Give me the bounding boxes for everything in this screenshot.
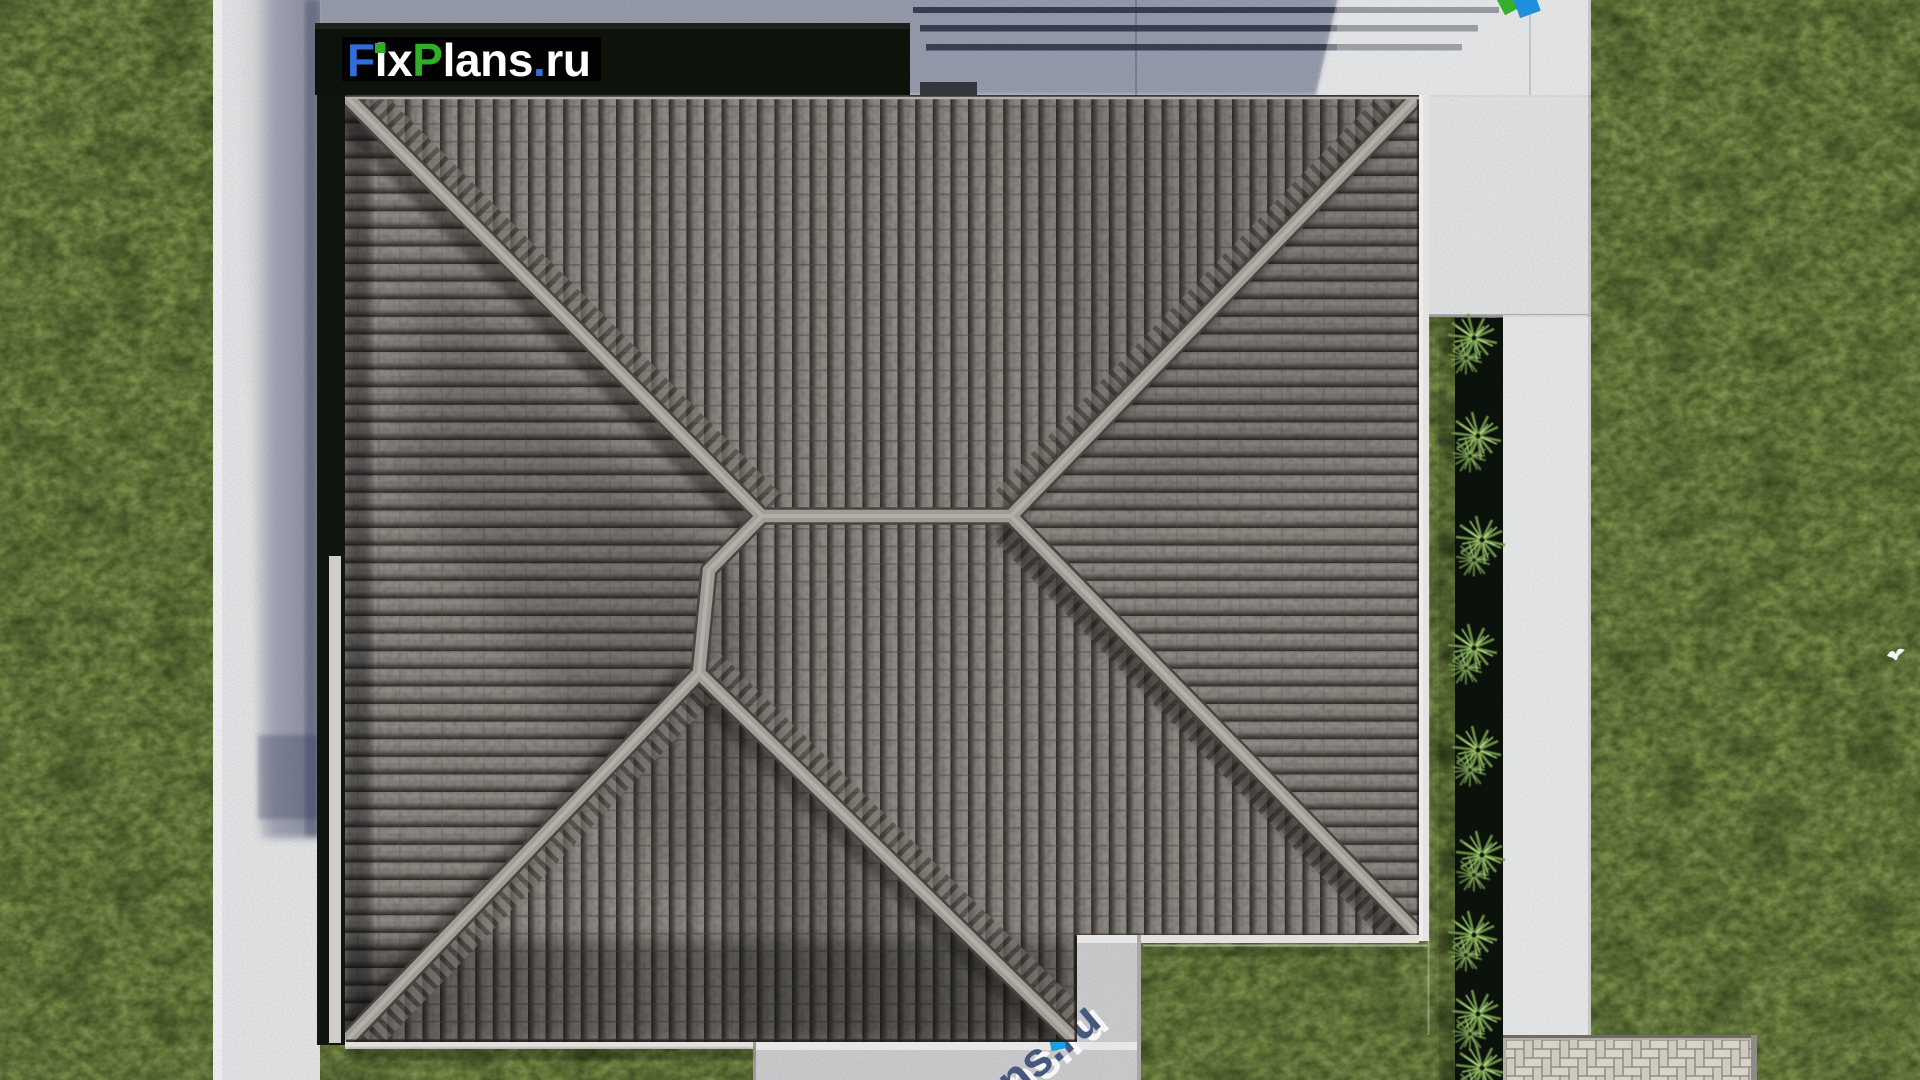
svg-text:FixPlans.ru: FixPlans.ru [347,34,591,86]
